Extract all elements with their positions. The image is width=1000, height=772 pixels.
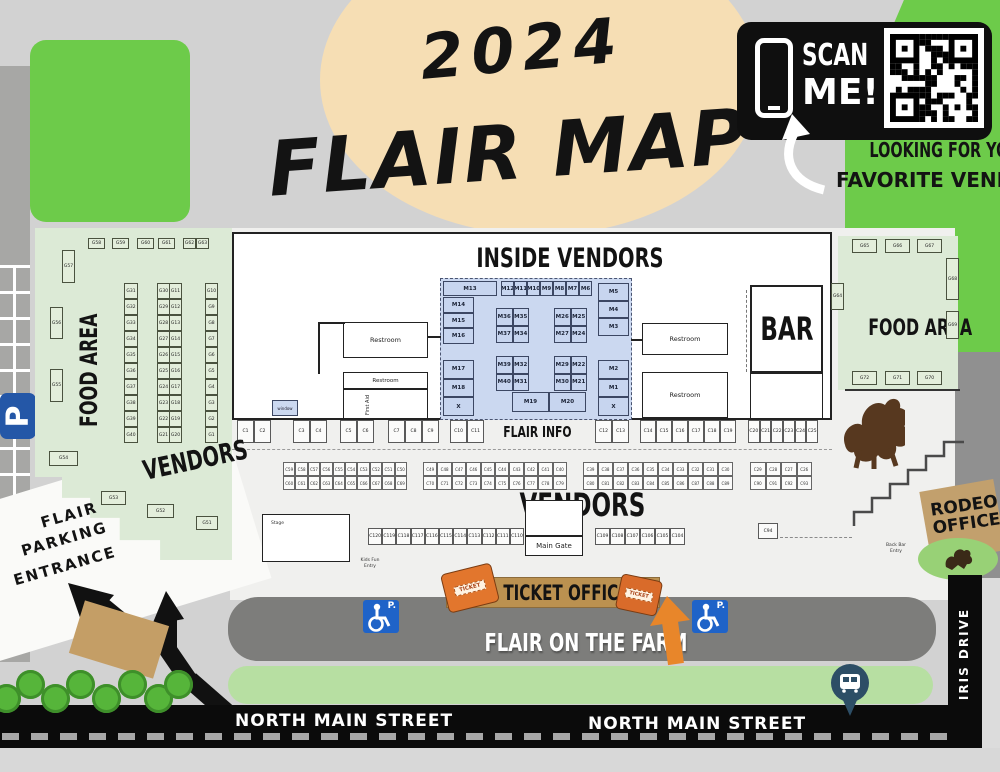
booth: G20 xyxy=(169,427,182,443)
rodeo-rider-graphic xyxy=(830,390,905,470)
booth: C13 xyxy=(612,420,629,443)
booth: C120 xyxy=(368,528,382,545)
booth-col-left-bottom: M17M18X xyxy=(443,360,474,416)
booth: C27 xyxy=(781,462,797,476)
booth: M31 xyxy=(513,374,530,392)
booth: C24 xyxy=(795,420,807,443)
booth: C107 xyxy=(625,528,640,545)
booth: C39 xyxy=(583,462,598,476)
iris-drive-label: IRIS DRIVE xyxy=(957,574,971,734)
booth-row: C60C61C62C63C64C65C66C67C68C69 xyxy=(283,476,407,490)
restroom-label: Restroom xyxy=(372,378,398,384)
booth: C17 xyxy=(688,420,704,443)
booth: G34 xyxy=(124,331,138,347)
booth-col-right-bottom: M2M1X xyxy=(598,360,629,416)
booth: G69 xyxy=(946,311,959,339)
booth: C19 xyxy=(720,420,736,443)
booth: C2 xyxy=(254,420,271,443)
booth-row-bottom-center: M19M20 xyxy=(512,392,586,412)
booth: G51 xyxy=(196,516,218,530)
booth: C54 xyxy=(345,462,357,476)
booth: M8 xyxy=(553,281,566,296)
gate-structure xyxy=(525,500,583,536)
booth: M29 xyxy=(554,356,571,374)
bush-icon xyxy=(66,670,95,699)
booth: C56 xyxy=(320,462,332,476)
booth: C18 xyxy=(704,420,720,443)
booth: C58 xyxy=(295,462,307,476)
booth: M27 xyxy=(554,326,571,344)
booth: C92 xyxy=(781,476,797,490)
booth: C47 xyxy=(452,462,466,476)
booth: M35 xyxy=(513,308,530,326)
wall-line xyxy=(318,322,320,374)
rodeo-logo-glyph xyxy=(938,545,978,573)
inside-vendors-heading: INSIDE VENDORS xyxy=(440,243,632,274)
booth: C88 xyxy=(703,476,718,490)
booth: C94 xyxy=(758,523,778,539)
booth: C48 xyxy=(437,462,451,476)
booth-island-br: M29M22M30M21 xyxy=(554,356,587,391)
booth: M30 xyxy=(554,374,571,392)
main-gate-label: Main Gate xyxy=(536,542,572,550)
qr-code xyxy=(884,28,984,128)
street-center-dashes xyxy=(2,733,998,740)
booth: C28 xyxy=(766,462,782,476)
wall-line xyxy=(631,339,643,341)
booth: C4 xyxy=(310,420,327,443)
booth: G70 xyxy=(917,371,942,385)
window-booth: window xyxy=(272,400,298,416)
booth-row: C10C11 xyxy=(450,420,484,443)
north-main-street-left-label: NORTH MAIN STREET xyxy=(235,711,453,731)
booth: G72 xyxy=(852,371,877,385)
food-area-right-label: FOOD AREA xyxy=(848,316,948,341)
booth: C12 xyxy=(595,420,612,443)
booth: C36 xyxy=(628,462,643,476)
booth-pair: G62G63 xyxy=(183,238,209,249)
booth: M11 xyxy=(514,281,527,296)
booth: C91 xyxy=(766,476,782,490)
booth: C45 xyxy=(481,462,495,476)
booth-col: G10G9G8G7G6G5G4G3G2G1 xyxy=(205,283,218,443)
booth: C57 xyxy=(308,462,320,476)
booth-island-tl: M36M35M37M34 xyxy=(496,308,529,343)
booth: C20 xyxy=(748,420,760,443)
booth: G6 xyxy=(205,347,218,363)
bush-icon xyxy=(92,684,121,713)
wall-line xyxy=(318,322,345,324)
booth: M15 xyxy=(443,313,474,329)
restroom-label: Restroom xyxy=(670,335,701,343)
booth: C25 xyxy=(806,420,818,443)
booth: C14 xyxy=(640,420,656,443)
booth-col: G11G12G13G14G15G16G17G18G19G20 xyxy=(169,283,182,443)
bar-back-room xyxy=(750,373,823,419)
top-left-green-square xyxy=(30,40,190,222)
booth: G1 xyxy=(205,427,218,443)
booth: C29 xyxy=(750,462,766,476)
booth: G19 xyxy=(169,411,182,427)
bush-row xyxy=(0,662,200,712)
booth: C15 xyxy=(656,420,672,443)
booth: C10 xyxy=(450,420,467,443)
booth: G11 xyxy=(169,283,182,299)
booth-row: C14C15C16C17C18C19 xyxy=(640,420,736,443)
booth: C70 xyxy=(423,476,437,490)
booth: M36 xyxy=(496,308,513,326)
booth: G67 xyxy=(917,239,942,253)
iris-drive-road: IRIS DRIVE xyxy=(948,575,982,748)
booth: M10 xyxy=(527,281,540,296)
booth: C11 xyxy=(467,420,484,443)
booth: G17 xyxy=(169,379,182,395)
booth: C117 xyxy=(411,528,425,545)
booth: M37 xyxy=(496,326,513,344)
booth: G68 xyxy=(946,258,959,300)
scan-label-1: SCAN xyxy=(802,38,894,73)
first-aid-label: First Aid xyxy=(365,395,371,415)
booth: C3 xyxy=(293,420,310,443)
booth-m13-row: M13 xyxy=(443,281,497,296)
booth: G4 xyxy=(205,379,218,395)
booth: M2 xyxy=(598,360,629,379)
booth: C5 xyxy=(340,420,357,443)
booth-col-right: M5M4M3 xyxy=(598,283,629,336)
booth: C113 xyxy=(467,528,481,545)
booth: C61 xyxy=(295,476,307,490)
booth: C42 xyxy=(524,462,538,476)
booth: C38 xyxy=(598,462,613,476)
booth: X xyxy=(598,397,629,416)
booth: M17 xyxy=(443,360,474,379)
booth: C16 xyxy=(672,420,688,443)
bush-icon xyxy=(164,670,193,699)
booth: C52 xyxy=(370,462,382,476)
flair-on-the-farm-label: FLAIR ON THE FARM xyxy=(445,628,655,657)
booth: G35 xyxy=(124,347,138,363)
booth: C6 xyxy=(357,420,374,443)
booth: C46 xyxy=(466,462,480,476)
booth-col-left: M14M15M16 xyxy=(443,297,474,344)
booth: G71 xyxy=(885,371,910,385)
booth-row: C5C6 xyxy=(340,420,374,443)
booth: C21 xyxy=(760,420,772,443)
booth-row: C12C13 xyxy=(595,420,629,443)
booth: G64 xyxy=(831,283,844,310)
booth: C87 xyxy=(688,476,703,490)
booth: C108 xyxy=(610,528,625,545)
booth: C53 xyxy=(357,462,369,476)
booth-row: C120C119C118C117C116C115C114C113C112C111… xyxy=(368,528,524,545)
booth: G59 xyxy=(112,238,129,249)
booth: M6 xyxy=(579,281,592,296)
restroom-b: Restroom xyxy=(343,372,428,389)
booth: C8 xyxy=(405,420,422,443)
booth: C93 xyxy=(797,476,813,490)
booth: G58 xyxy=(88,238,105,249)
booth: C55 xyxy=(333,462,345,476)
booth: C111 xyxy=(496,528,510,545)
booth: C116 xyxy=(425,528,439,545)
handicap-p-label: P. xyxy=(388,601,396,611)
wall-line-dashed xyxy=(746,290,747,372)
booth-row: C39C38C37C36C35C34C33C32C31C30 xyxy=(583,462,733,476)
booth: C26 xyxy=(797,462,813,476)
booth: G65 xyxy=(852,239,877,253)
booth-row: C7C8C9 xyxy=(388,420,439,443)
booth: C23 xyxy=(783,420,795,443)
north-main-street-right-label: NORTH MAIN STREET xyxy=(588,714,806,734)
booth: M22 xyxy=(571,356,588,374)
booth-c94: C94 xyxy=(758,523,778,539)
bottom-margin xyxy=(0,748,1000,772)
booth-row-top: M12M11M10M9M8M7M6 xyxy=(501,281,592,296)
restroom-c: Restroom xyxy=(642,323,728,355)
booth: C71 xyxy=(437,476,451,490)
booth: C72 xyxy=(452,476,466,490)
booth: M26 xyxy=(554,308,571,326)
booth: C74 xyxy=(481,476,495,490)
first-aid-room: First Aid xyxy=(343,389,428,419)
booth: G9 xyxy=(205,299,218,315)
booth: G52 xyxy=(147,504,174,518)
booth-island-bl: M39M32M40M31 xyxy=(496,356,529,391)
ticket-word: TICKET xyxy=(624,587,653,603)
booth: G40 xyxy=(124,427,138,443)
booth: G62 xyxy=(183,238,196,249)
handicap-p-label: P. xyxy=(717,601,725,611)
booth: G63 xyxy=(196,238,209,249)
booth: C67 xyxy=(370,476,382,490)
booth: C73 xyxy=(466,476,480,490)
booth: M24 xyxy=(571,326,588,344)
overhang-line xyxy=(232,449,832,450)
bar-label: BAR xyxy=(750,310,824,348)
ticket-word: TICKET xyxy=(453,579,486,596)
booth: G13 xyxy=(169,315,182,331)
booth: C33 xyxy=(673,462,688,476)
booth: C59 xyxy=(283,462,295,476)
flair-info-label: FLAIR INFO xyxy=(490,423,585,441)
booth: M18 xyxy=(443,379,474,398)
booth: C89 xyxy=(718,476,733,490)
right-food-area xyxy=(838,236,958,390)
food-area-left-label: FOOD AREA xyxy=(75,299,103,449)
booth: C31 xyxy=(703,462,718,476)
booth: G32 xyxy=(124,299,138,315)
booth: G2 xyxy=(205,411,218,427)
booth: G38 xyxy=(124,395,138,411)
booth: C60 xyxy=(283,476,295,490)
booth: C65 xyxy=(345,476,357,490)
booth: M32 xyxy=(513,356,530,374)
phone-home-bar xyxy=(768,106,780,110)
bus-stop-pin xyxy=(828,662,872,718)
booth: G5 xyxy=(205,363,218,379)
booth: C44 xyxy=(495,462,509,476)
stage-building: Stage xyxy=(262,514,350,562)
booth-row: C49C48C47C46C45C44C43C42C41C40 xyxy=(423,462,567,476)
booth: M20 xyxy=(549,392,586,412)
booth: C7 xyxy=(388,420,405,443)
restroom-a: Restroom xyxy=(343,322,428,358)
restroom-label: Restroom xyxy=(370,336,401,344)
booth: G56 xyxy=(50,307,63,339)
booth: C112 xyxy=(482,528,496,545)
booth: M39 xyxy=(496,356,513,374)
booth: C68 xyxy=(382,476,394,490)
booth: C119 xyxy=(382,528,396,545)
right-of-iris xyxy=(982,578,1000,748)
booth: C66 xyxy=(357,476,369,490)
booth: C115 xyxy=(439,528,453,545)
booth: C110 xyxy=(510,528,524,545)
booth: G16 xyxy=(169,363,182,379)
booth: C35 xyxy=(643,462,658,476)
booth: M34 xyxy=(513,326,530,344)
booth-row: C20C21C22C23C24C25 xyxy=(748,420,818,443)
booth: G55 xyxy=(50,369,63,402)
booth: C50 xyxy=(395,462,407,476)
booth: C9 xyxy=(422,420,439,443)
caption-line: Entry xyxy=(876,549,916,555)
handicap-sign-left: P. xyxy=(363,600,399,633)
vendor-caption-1: LOOKING FOR YOUR xyxy=(838,138,1000,162)
booth: M9 xyxy=(540,281,553,296)
booth: G14 xyxy=(169,331,182,347)
booth: C40 xyxy=(553,462,567,476)
booth: G54 xyxy=(49,451,78,466)
booth: G37 xyxy=(124,379,138,395)
booth: C37 xyxy=(613,462,628,476)
booth: C105 xyxy=(655,528,670,545)
booth: C32 xyxy=(688,462,703,476)
booth: G33 xyxy=(124,315,138,331)
booth: C85 xyxy=(658,476,673,490)
booth: C62 xyxy=(308,476,320,490)
booth: C90 xyxy=(750,476,766,490)
booth: M19 xyxy=(512,392,549,412)
booth: C114 xyxy=(453,528,467,545)
booth: X xyxy=(443,397,474,416)
window-label: window xyxy=(277,406,292,411)
booth: M25 xyxy=(571,308,588,326)
kids-entry-caption: Kids Fun Entry xyxy=(350,558,390,570)
booth: M7 xyxy=(566,281,579,296)
booth: G53 xyxy=(101,491,126,505)
booth: C106 xyxy=(640,528,655,545)
wall-line xyxy=(427,336,441,338)
curved-arrow-icon xyxy=(766,112,836,197)
bar-room: BAR xyxy=(750,285,823,373)
booth: C118 xyxy=(396,528,410,545)
booth-row: C90C91C92C93 xyxy=(750,476,812,490)
booth: G60 xyxy=(137,238,154,249)
booth: C109 xyxy=(595,528,610,545)
bush-icon xyxy=(118,670,147,699)
parking-sign: P xyxy=(0,393,36,439)
booth: M21 xyxy=(571,374,588,392)
parking-sign-label: P xyxy=(1,405,36,427)
restroom-d: Restroom xyxy=(642,372,728,418)
flair-map-poster: P 2024 FLAIR MAP SCAN ME! LOOKING FOR YO… xyxy=(0,0,1000,772)
booth: C63 xyxy=(320,476,332,490)
booth-row: C29C28C27C26 xyxy=(750,462,812,476)
handicap-sign-right: P. xyxy=(692,600,728,633)
booth: G39 xyxy=(124,411,138,427)
booth-col: G31G32G33G34G35G36G37G38G39G40 xyxy=(124,283,138,443)
main-gate: Main Gate xyxy=(525,536,583,556)
booth: C22 xyxy=(771,420,783,443)
booth: G12 xyxy=(169,299,182,315)
stage-label: Stage xyxy=(271,521,284,526)
booth: G57 xyxy=(62,250,75,283)
booth: C30 xyxy=(718,462,733,476)
caption-line: Entry xyxy=(350,564,390,570)
booth-island-tr: M26M25M27M24 xyxy=(554,308,587,343)
vendor-caption-2: FAVORITE VENDOR? xyxy=(836,168,1000,192)
booth: G15 xyxy=(169,347,182,363)
booth: M1 xyxy=(598,379,629,398)
booth: M13 xyxy=(443,281,497,296)
booth-row: C59C58C57C56C55C54C53C52C51C50 xyxy=(283,462,407,476)
booth: C51 xyxy=(382,462,394,476)
booth: C86 xyxy=(673,476,688,490)
booth: C69 xyxy=(395,476,407,490)
booth: C104 xyxy=(670,528,685,545)
booth: M16 xyxy=(443,328,474,344)
booth: G10 xyxy=(205,283,218,299)
booth: M4 xyxy=(598,301,629,319)
booth: G31 xyxy=(124,283,138,299)
scan-label-2: ME! xyxy=(802,72,879,113)
booth: C49 xyxy=(423,462,437,476)
booth: G7 xyxy=(205,331,218,347)
booth: M5 xyxy=(598,283,629,301)
booth: M14 xyxy=(443,297,474,313)
booth-row: C109C108C107C106C105C104 xyxy=(595,528,685,545)
booth: M12 xyxy=(501,281,514,296)
booth: C64 xyxy=(333,476,345,490)
restroom-label: Restroom xyxy=(670,391,701,399)
booth-row: C3C4 xyxy=(293,420,327,443)
booth: G66 xyxy=(885,239,910,253)
booth: M40 xyxy=(496,374,513,392)
booth: G3 xyxy=(205,395,218,411)
booth: G18 xyxy=(169,395,182,411)
booth: C41 xyxy=(538,462,552,476)
booth: G36 xyxy=(124,363,138,379)
booth: C43 xyxy=(509,462,523,476)
booth: C34 xyxy=(658,462,673,476)
booth: M3 xyxy=(598,318,629,336)
booth: G61 xyxy=(158,238,175,249)
booth: G8 xyxy=(205,315,218,331)
